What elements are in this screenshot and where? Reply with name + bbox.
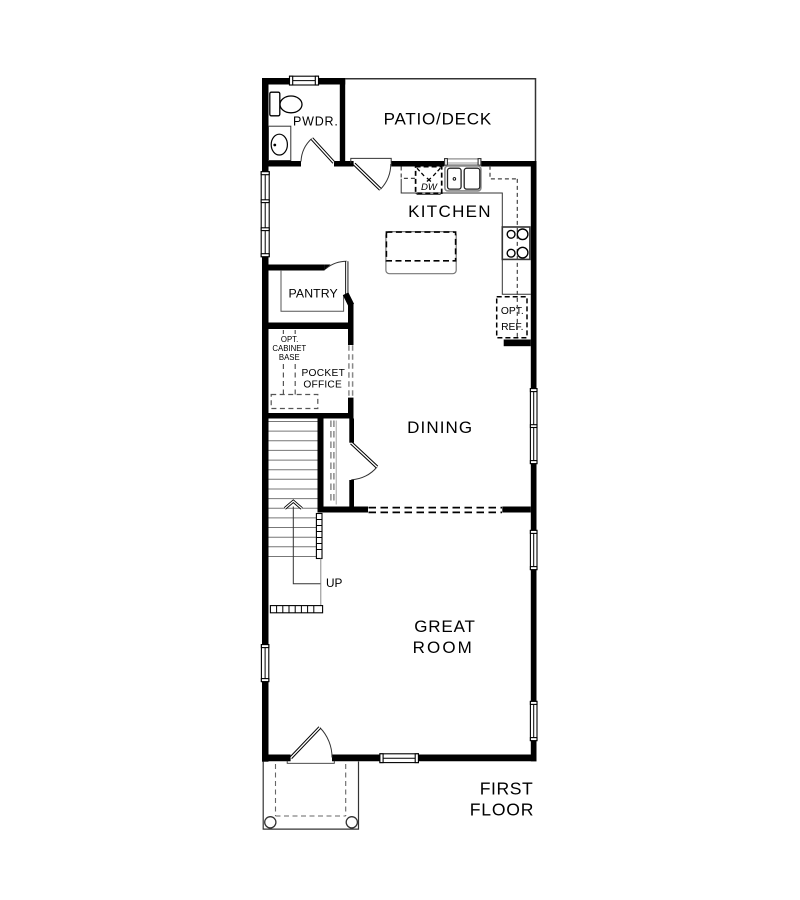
svg-text:POCKET: POCKET xyxy=(301,368,345,379)
svg-text:PANTRY: PANTRY xyxy=(289,286,338,300)
svg-text:REF.: REF. xyxy=(501,322,523,333)
svg-text:UP: UP xyxy=(326,576,343,590)
svg-text:DW: DW xyxy=(421,182,438,193)
svg-text:FLOOR: FLOOR xyxy=(470,800,535,820)
svg-text:PWDR.: PWDR. xyxy=(293,115,339,129)
svg-text:FIRST: FIRST xyxy=(480,778,534,798)
svg-text:PATIO/DECK: PATIO/DECK xyxy=(384,110,492,129)
svg-text:KITCHEN: KITCHEN xyxy=(408,202,492,221)
svg-text:DINING: DINING xyxy=(407,418,473,437)
svg-text:OPT.: OPT. xyxy=(501,306,524,317)
svg-text:BASE: BASE xyxy=(279,353,300,362)
svg-text:GREAT: GREAT xyxy=(414,617,476,636)
svg-text:ROOM: ROOM xyxy=(413,638,474,657)
svg-text:OPT.: OPT. xyxy=(281,335,298,344)
svg-text:OFFICE: OFFICE xyxy=(303,379,342,390)
